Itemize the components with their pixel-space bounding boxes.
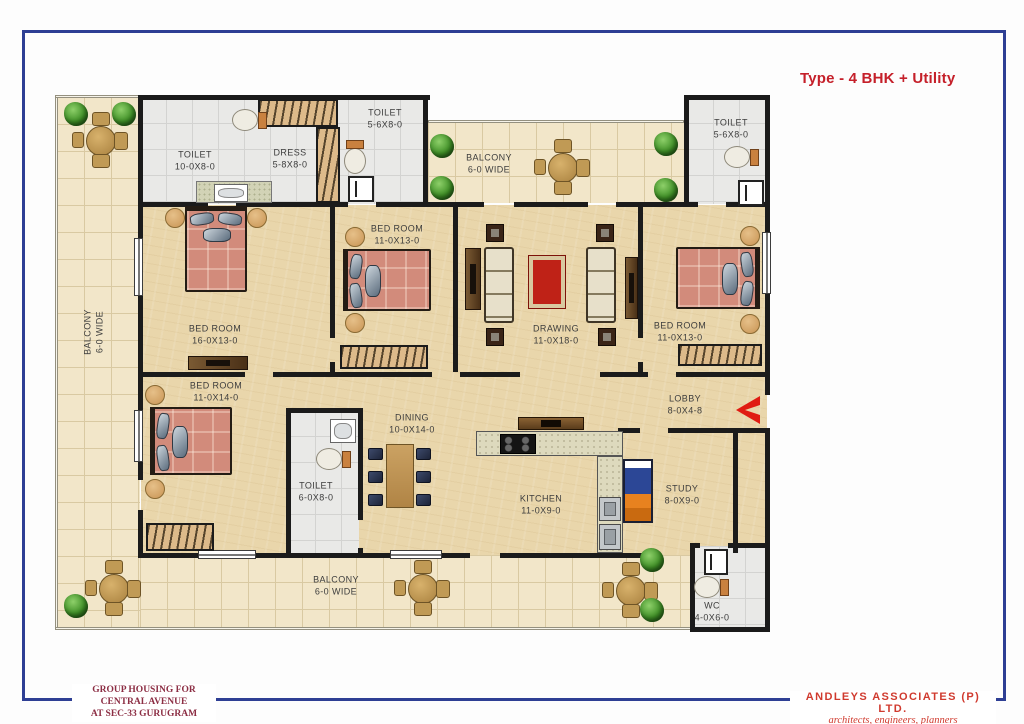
corner-table (598, 328, 616, 346)
wc-cistern (346, 140, 364, 149)
drawing-sheet: Type - 4 BHK + Utility (0, 0, 1024, 724)
corner-table (486, 224, 504, 242)
bedside-table (345, 313, 365, 333)
wall (728, 543, 770, 548)
wc-cistern (258, 112, 267, 129)
room-label-dining: DINING 10-0X14-0 (389, 412, 435, 435)
room-name: STUDY (665, 483, 700, 495)
wall (138, 372, 245, 377)
room-label-bedroom-lower: BED ROOM 11-0X14-0 (190, 380, 242, 403)
plant (64, 102, 88, 126)
parapet-top-balcony (428, 120, 684, 123)
wall (690, 627, 770, 632)
room-name: KITCHEN (520, 493, 562, 505)
room-name: BED ROOM (189, 323, 241, 335)
project-line: AT SEC-33 GURUGRAM (74, 709, 214, 721)
wc-fixture (232, 109, 258, 131)
window (134, 410, 143, 462)
wardrobe-hatch (678, 344, 762, 366)
dining-chair (416, 448, 431, 460)
tv-console (188, 356, 248, 370)
wall (138, 510, 143, 557)
wc-cistern (720, 579, 729, 596)
wall (638, 362, 643, 372)
bedside-table (165, 208, 185, 228)
wall (668, 428, 770, 433)
bedside-table (345, 227, 365, 247)
plant (640, 548, 664, 572)
plant (112, 102, 136, 126)
room-dims: 11-0X18-0 (533, 335, 579, 347)
room-name: BALCONY (313, 574, 359, 586)
dining-chair (368, 494, 383, 506)
wall (600, 372, 648, 377)
wall (514, 202, 588, 207)
wash-basin (214, 184, 248, 202)
room-label-balcony-top: BALCONY 6-0 WIDE (466, 152, 512, 175)
plant (654, 132, 678, 156)
room-label-wc: WC 4-0X6-0 (695, 600, 730, 623)
wall (358, 408, 363, 520)
wardrobe-hatch (340, 345, 428, 369)
room-name: TOILET (299, 480, 334, 492)
wardrobe-hatch (146, 523, 214, 551)
plant (430, 134, 454, 158)
bedside-table (740, 314, 760, 334)
wall (616, 202, 698, 207)
wall (638, 207, 643, 338)
project-line: GROUP HOUSING FOR (74, 685, 214, 697)
room-label-balcony-left: BALCONY 6-0 WIDE (82, 309, 105, 355)
tv-console (465, 248, 481, 310)
room-dims: 6-0 WIDE (313, 586, 359, 598)
balcony-left-floor (57, 97, 140, 628)
room-dims: 5-6X8-0 (368, 119, 403, 131)
wall (684, 95, 770, 100)
project-line: CENTRAL AVENUE (74, 697, 214, 709)
wc-cistern (342, 451, 351, 468)
dining-table (386, 444, 414, 508)
wall (676, 372, 770, 377)
wall (423, 95, 428, 207)
window (762, 232, 771, 294)
kitchen-sink (599, 497, 621, 521)
round-table-set (85, 560, 141, 616)
dining-chair (416, 494, 431, 506)
bedside-table (145, 385, 165, 405)
window (390, 550, 442, 559)
room-label-dress: DRESS 5-8X8-0 (273, 147, 308, 170)
wall (500, 553, 655, 558)
wall (273, 372, 432, 377)
room-name: BALCONY (82, 309, 94, 355)
bedside-table (740, 226, 760, 246)
plant (654, 178, 678, 202)
double-bed (150, 407, 232, 475)
room-label-study: STUDY 8-0X9-0 (665, 483, 700, 506)
crockery-shelf (518, 417, 584, 430)
room-name: BED ROOM (371, 223, 423, 235)
kitchen-counter (476, 431, 623, 456)
corner-table (486, 328, 504, 346)
sofa (484, 247, 514, 323)
wc-fixture (694, 576, 720, 598)
room-name: TOILET (714, 117, 749, 129)
room-dims: 16-0X13-0 (189, 335, 241, 347)
room-name: BED ROOM (654, 320, 706, 332)
wc-door (704, 549, 728, 575)
wall (330, 207, 335, 338)
room-name: DRESS (273, 147, 308, 159)
room-dims: 10-0X14-0 (389, 424, 435, 436)
room-dims: 6-0 WIDE (466, 164, 512, 176)
window (134, 238, 143, 296)
room-name: LOBBY (668, 393, 703, 405)
room-label-toilet-top-right: TOILET 5-6X8-0 (714, 117, 749, 140)
room-name: WC (695, 600, 730, 612)
side-console (625, 257, 638, 319)
room-label-lobby: LOBBY 8-0X4-8 (668, 393, 703, 416)
room-name: TOILET (368, 107, 403, 119)
room-name: BED ROOM (190, 380, 242, 392)
plant (430, 176, 454, 200)
wall (330, 362, 335, 372)
double-bed (185, 206, 247, 292)
wall (460, 372, 520, 377)
room-dims: 11-0X9-0 (520, 505, 562, 517)
wall (286, 408, 363, 413)
room-dims: 8-0X4-8 (668, 405, 703, 417)
double-bed (676, 247, 760, 309)
wall (733, 432, 738, 553)
round-table-set (534, 139, 590, 195)
parapet-top-left (55, 95, 140, 98)
room-dims: 10-0X8-0 (175, 161, 215, 173)
dining-chair (368, 448, 383, 460)
room-label-toilet-lower: TOILET 6-0X8-0 (299, 480, 334, 503)
wall (286, 408, 291, 553)
project-title-block: GROUP HOUSING FOR CENTRAL AVENUE AT SEC-… (72, 684, 216, 722)
room-dims: 11-0X13-0 (371, 235, 423, 247)
wall (684, 95, 689, 207)
wall (765, 543, 770, 632)
room-name: DRAWING (533, 323, 579, 335)
window (198, 550, 256, 559)
room-label-bedroom-right: BED ROOM 11-0X13-0 (654, 320, 706, 343)
room-label-bedroom-mid: BED ROOM 11-0X13-0 (371, 223, 423, 246)
dress-wardrobe-hatch (258, 99, 338, 127)
room-name: DINING (389, 412, 435, 424)
wc-fixture (344, 148, 366, 174)
room-dims: 5-6X8-0 (714, 129, 749, 141)
single-bed (623, 459, 653, 523)
corner-table (596, 224, 614, 242)
bedside-table (145, 479, 165, 499)
wc-cistern (750, 149, 759, 166)
wc-fixture (724, 146, 750, 168)
firm-name: ANDLEYS ASSOCIATES (P) LTD. (793, 691, 993, 715)
stove-hob (500, 434, 536, 454)
toilet-door (738, 180, 764, 206)
wall (376, 202, 484, 207)
room-dims: 5-8X8-0 (273, 159, 308, 171)
room-dims: 6-0X8-0 (299, 492, 334, 504)
floor-plan: BALCONY 6-0 WIDE TOILET 10-0X8-0 DRESS 5… (0, 0, 1024, 724)
room-name: TOILET (175, 149, 215, 161)
sofa (586, 247, 616, 323)
wash-basin (330, 419, 356, 443)
parapet-left (55, 95, 58, 630)
firm-tagline: architects, engineers, planners (793, 715, 993, 724)
room-name: BALCONY (466, 152, 512, 164)
room-label-toilet-master: TOILET 10-0X8-0 (175, 149, 215, 172)
entrance-arrow-icon (732, 396, 762, 424)
wall (765, 432, 770, 553)
toilet-door (348, 176, 374, 202)
wc-fixture (316, 448, 342, 470)
room-label-drawing: DRAWING 11-0X18-0 (533, 323, 579, 346)
room-label-kitchen: KITCHEN 11-0X9-0 (520, 493, 562, 516)
room-label-bedroom-master: BED ROOM 16-0X13-0 (189, 323, 241, 346)
double-bed (343, 249, 431, 311)
wall (453, 207, 458, 372)
dining-chair (416, 471, 431, 483)
room-dims: 11-0X13-0 (654, 332, 706, 344)
dress-wardrobe-hatch (316, 127, 340, 203)
parapet-bottom (55, 627, 693, 630)
plant (640, 598, 664, 622)
room-label-toilet-mid-top: TOILET 5-6X8-0 (368, 107, 403, 130)
room-dims: 11-0X14-0 (190, 392, 242, 404)
rug (529, 256, 565, 308)
bedside-table (247, 208, 267, 228)
room-dims: 8-0X9-0 (665, 495, 700, 507)
kitchen-sink (599, 524, 621, 550)
round-table-set (394, 560, 450, 616)
firm-title-block: ANDLEYS ASSOCIATES (P) LTD. architects, … (790, 691, 996, 724)
room-dims: 4-0X6-0 (695, 612, 730, 624)
room-dims: 6-0 WIDE (94, 309, 106, 355)
dining-chair (368, 471, 383, 483)
plant (64, 594, 88, 618)
room-label-balcony-bottom: BALCONY 6-0 WIDE (313, 574, 359, 597)
